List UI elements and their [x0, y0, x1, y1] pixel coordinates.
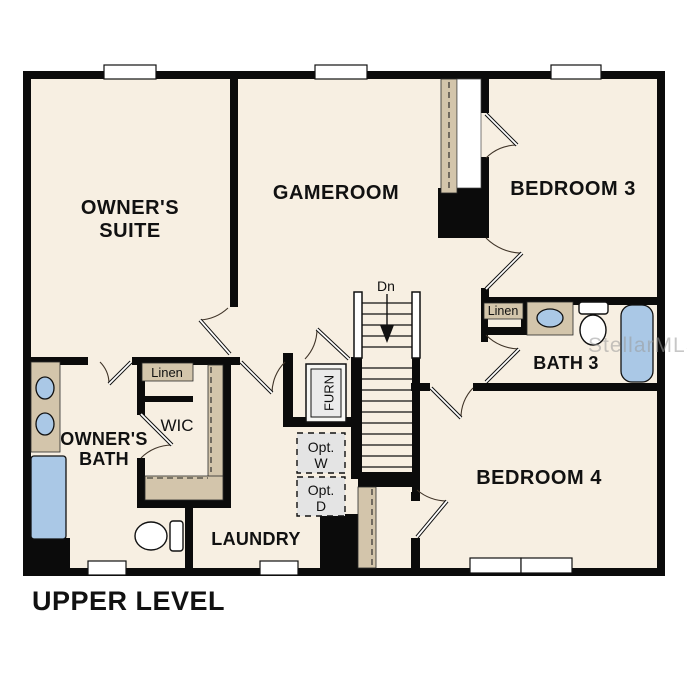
wall-bedroom4-north-stub: [411, 383, 430, 391]
wall-stairs-bottom: [358, 472, 420, 487]
window-owners-bath: [88, 561, 126, 575]
owners-bath-label-1: OWNER'S: [60, 429, 147, 449]
window-bedroom4-left: [470, 558, 521, 573]
wall-block-laundry: [320, 514, 360, 576]
bedroom4-label: BEDROOM 4: [476, 467, 602, 489]
wall-suite-gameroom: [230, 71, 238, 307]
wall-laundry-left: [185, 508, 193, 576]
floor-plan-drawing: FURN Opt. W Opt. D Dn: [0, 0, 687, 687]
wall-wic-bottom: [137, 500, 231, 508]
window-bedroom4-right: [521, 558, 572, 573]
wall-linen2-bottom: [481, 327, 528, 335]
wall-stairs-left: [351, 357, 362, 479]
owners-suite-label-2: SUITE: [99, 220, 160, 242]
bedroom4-closet-shelf: [358, 487, 376, 568]
owners-bath-sink-2: [36, 413, 54, 435]
window-bedroom3: [551, 65, 601, 79]
owners-bath-sink-1: [36, 377, 54, 399]
window-gameroom: [315, 65, 367, 79]
owners-bath-toilet-bowl: [135, 522, 167, 550]
optional-dryer-label-1: Opt.: [308, 482, 334, 498]
wall-linen-divider: [145, 396, 193, 402]
wic-shelf-bottom: [145, 476, 223, 500]
wic-label: WIC: [160, 416, 193, 435]
plan-title: UPPER LEVEL: [32, 586, 225, 616]
wic-linen-label: Linen: [151, 365, 183, 380]
wall-exterior-left: [23, 71, 31, 576]
stair-down-label: Dn: [377, 278, 395, 294]
wall-wic-right: [223, 357, 231, 508]
bedroom3-label: BEDROOM 3: [510, 178, 636, 200]
owners-suite-label-1: OWNER'S: [81, 197, 179, 219]
optional-washer-label-2: W: [314, 455, 328, 471]
wall-chase-block: [438, 188, 489, 238]
bath3-toilet-tank: [579, 302, 608, 314]
window-owners-suite: [104, 65, 156, 79]
stair-rail-right: [412, 292, 420, 358]
wall-bedroom4-north: [473, 383, 657, 391]
optional-dryer-label-2: D: [316, 498, 326, 514]
bedroom3-closet-floor: [457, 79, 481, 188]
bath3-linen-label: Linen: [488, 304, 519, 318]
wall-bedroom3-west-upper: [481, 71, 489, 113]
wall-b4closet-hinge: [411, 492, 420, 501]
wall-exterior-right: [657, 71, 665, 576]
watermark-text: StellarMLS: [588, 334, 687, 357]
owners-bath-toilet-tank: [170, 521, 183, 551]
gameroom-label: GAMEROOM: [273, 182, 399, 204]
wall-b4closet-stub: [411, 538, 420, 570]
floor-plan-page: FURN Opt. W Opt. D Dn: [0, 0, 687, 687]
window-laundry: [260, 561, 298, 575]
furnace-label: FURN: [321, 375, 336, 411]
wall-block-tub-corner: [23, 538, 70, 576]
bath3-sink: [537, 309, 563, 327]
owners-bath-label-2: BATH: [79, 449, 129, 469]
owners-bath-tub: [31, 456, 66, 539]
wall-furnace-left: [283, 353, 293, 427]
optional-washer-label-1: Opt.: [308, 439, 334, 455]
stair-rail-left: [354, 292, 362, 358]
laundry-label: LAUNDRY: [211, 529, 300, 549]
owners-bath-vanity: [31, 362, 60, 452]
